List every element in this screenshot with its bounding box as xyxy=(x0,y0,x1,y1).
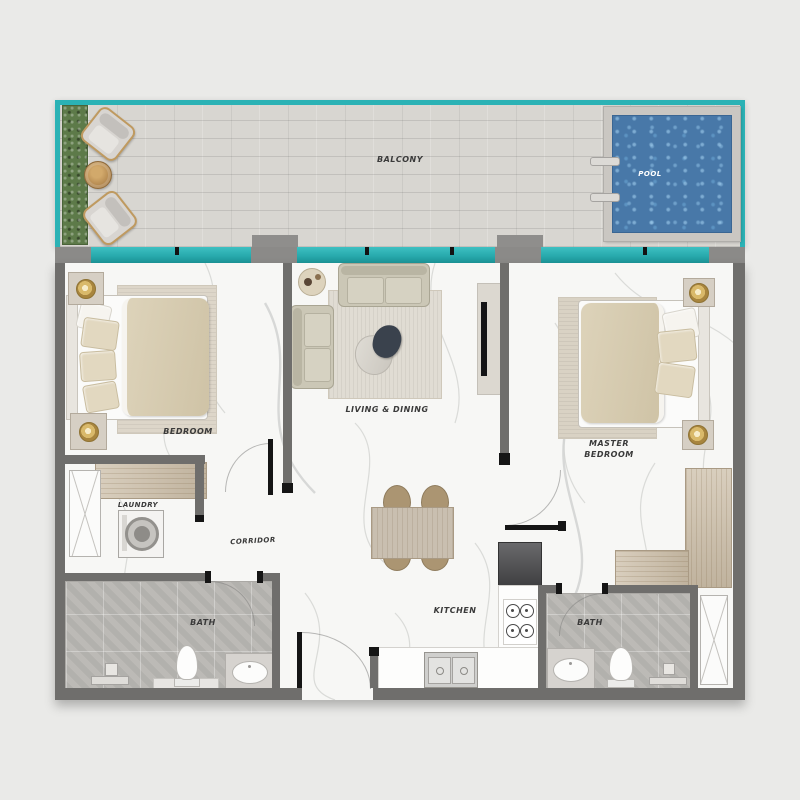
pillow xyxy=(656,328,697,364)
lounge-chair-icon xyxy=(80,188,140,249)
door-stop xyxy=(365,247,369,255)
lamp-icon xyxy=(688,425,708,445)
door-jamb xyxy=(257,571,263,583)
bedroom-bed xyxy=(66,295,208,420)
wall-laundry xyxy=(195,455,204,520)
sofa-cushion xyxy=(304,348,331,382)
sofa-horizontal xyxy=(338,263,430,307)
sliding-closet xyxy=(700,595,728,685)
lamp-icon xyxy=(689,283,709,303)
wall-bath-left-right xyxy=(272,573,280,688)
outer-wall-right xyxy=(733,263,745,700)
wall-pillar xyxy=(55,247,91,263)
door-jamb xyxy=(282,483,293,493)
shower-bar-icon xyxy=(91,676,129,685)
outer-wall-bottom xyxy=(373,688,745,700)
sofa-back xyxy=(293,308,302,386)
balcony-area: BALCONY POOL xyxy=(55,100,745,247)
tv-unit xyxy=(477,283,502,395)
door-jamb xyxy=(205,571,211,583)
wall-living-master xyxy=(500,263,509,453)
washing-machine-icon xyxy=(118,510,164,558)
door-stop xyxy=(450,247,454,255)
pool: POOL xyxy=(604,107,740,241)
toilet-icon xyxy=(607,647,635,688)
bedroom-label: BEDROOM xyxy=(150,427,226,436)
washbasin-counter xyxy=(225,653,275,691)
decor-tray-icon xyxy=(298,268,326,296)
door-stop xyxy=(643,247,647,255)
master-bed xyxy=(578,300,710,428)
door-jamb xyxy=(602,583,608,594)
outer-wall-bottom xyxy=(55,688,302,700)
door-jamb xyxy=(558,521,566,531)
kitchen-label: KITCHEN xyxy=(423,606,487,615)
door-jamb xyxy=(556,583,562,594)
wall-kitchen-right xyxy=(538,585,546,688)
headboard xyxy=(66,295,78,420)
glass-wall xyxy=(55,247,745,263)
master-bedroom-label: MASTER BEDROOM xyxy=(574,439,644,461)
bedroom-closet xyxy=(95,462,207,499)
washer-drum xyxy=(125,517,159,551)
shower-bar-icon xyxy=(649,677,687,685)
toilet-icon xyxy=(174,645,200,687)
door-jamb xyxy=(499,453,510,465)
headboard xyxy=(698,300,710,428)
door-stop xyxy=(175,247,179,255)
living-dining-label: LIVING & DINING xyxy=(332,405,442,414)
washbasin-icon xyxy=(232,661,268,684)
lamp-icon xyxy=(79,422,99,442)
refrigerator-icon xyxy=(498,542,542,587)
sofa-cushion xyxy=(304,313,331,347)
pillow xyxy=(79,350,117,382)
door-jamb xyxy=(195,515,204,522)
apartment-interior: BEDROOM LIVING & DINING xyxy=(55,263,745,700)
nightstand xyxy=(68,272,104,305)
sofa-cushion xyxy=(347,277,384,304)
sofa-vertical xyxy=(290,305,334,389)
duvet xyxy=(122,298,209,416)
lamp-icon xyxy=(76,279,96,299)
master-door-leaf xyxy=(505,525,560,530)
outdoor-round-table-icon xyxy=(84,161,112,189)
tv-icon xyxy=(481,302,487,376)
sofa-cushion xyxy=(385,277,422,304)
pool-label: POOL xyxy=(620,170,680,178)
door-jamb xyxy=(369,647,379,656)
bath-left-label: BATH xyxy=(181,618,225,627)
wall-bedroom-living xyxy=(283,263,292,493)
shower-head-icon xyxy=(663,663,675,675)
nightstand xyxy=(682,420,714,450)
entry-door-leaf xyxy=(297,632,302,688)
sliding-closet xyxy=(69,470,101,557)
nightstand xyxy=(70,413,107,450)
shower-head-icon xyxy=(105,663,118,676)
gas-hob-icon xyxy=(503,599,537,645)
master-wardrobe-vertical xyxy=(685,468,732,588)
outer-wall-left xyxy=(55,263,65,700)
wall-bath-right-top xyxy=(608,585,692,593)
master-wardrobe-horizontal xyxy=(615,550,689,590)
wall-bedroom-bottom xyxy=(65,455,205,464)
kitchen-sink-icon xyxy=(424,652,478,688)
washbasin-icon xyxy=(553,658,589,682)
wall-pillar xyxy=(251,247,297,263)
dining-table xyxy=(371,507,454,559)
wall-pillar xyxy=(495,247,541,263)
laundry-label: LAUNDRY xyxy=(101,501,175,509)
pillow xyxy=(82,380,120,413)
wall-bath-right-right xyxy=(690,585,698,688)
wall-bath-right-top xyxy=(538,585,558,593)
nightstand xyxy=(683,278,715,307)
duvet xyxy=(581,303,664,423)
pool-ladder-icon xyxy=(590,157,620,166)
sofa-back xyxy=(341,266,427,275)
wall-bath-left-top xyxy=(65,573,205,581)
bath-right-label: BATH xyxy=(568,618,612,627)
bedroom-door-leaf xyxy=(268,439,273,495)
floor-plan-canvas: BALCONY POOL xyxy=(0,0,800,800)
pillow xyxy=(80,317,120,352)
pool-ladder-icon xyxy=(590,193,620,202)
balcony-label: BALCONY xyxy=(330,155,470,164)
pillow xyxy=(654,362,696,399)
wall-pillar xyxy=(709,247,745,263)
balcony-pillar xyxy=(497,235,543,247)
washbasin-counter xyxy=(547,648,595,690)
balcony-pillar xyxy=(252,235,298,247)
